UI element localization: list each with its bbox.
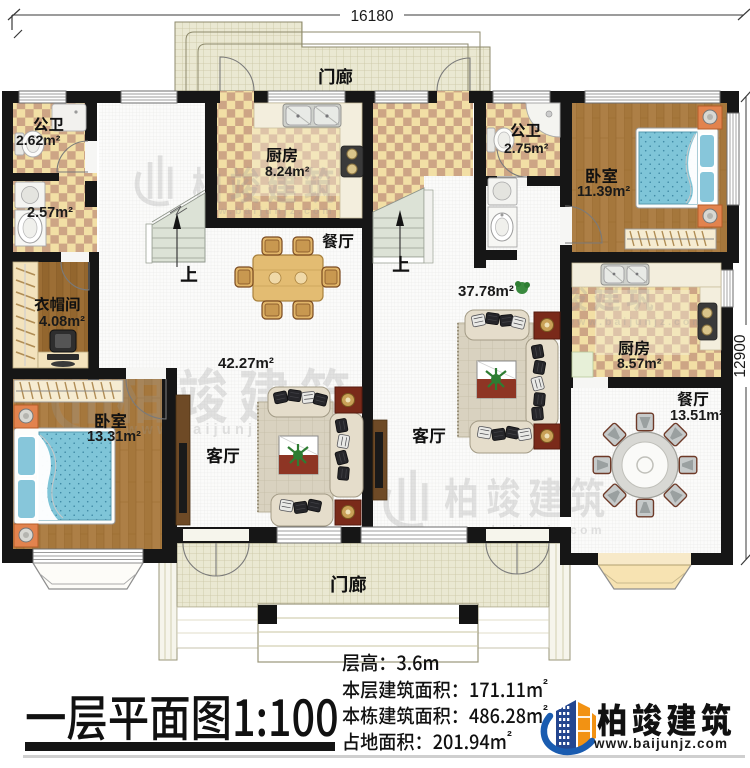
svg-text:8.57m²: 8.57m² (617, 355, 662, 371)
svg-text:²: ² (543, 677, 548, 693)
svg-text:www.baijunjz.com: www.baijunjz.com (593, 736, 728, 751)
svg-text:37.78m²: 37.78m² (458, 283, 514, 300)
svg-text:2.57m²: 2.57m² (27, 205, 73, 221)
svg-text:2.75m²: 2.75m² (504, 140, 549, 156)
svg-text:13.31m²: 13.31m² (87, 429, 141, 445)
svg-text:4.08m²: 4.08m² (39, 314, 85, 330)
svg-text:www.baijunjz.com: www.baijunjz.com (565, 316, 705, 328)
svg-text:13.51m²: 13.51m² (670, 408, 724, 424)
svg-text:11.39m²: 11.39m² (577, 184, 630, 200)
svg-text:16180: 16180 (350, 8, 393, 25)
svg-text:2.62m²: 2.62m² (16, 132, 61, 148)
svg-text:12900: 12900 (732, 334, 749, 377)
svg-text:²: ² (507, 729, 512, 745)
svg-text:8.24m²: 8.24m² (265, 163, 310, 179)
svg-text:42.27m²: 42.27m² (218, 355, 274, 372)
